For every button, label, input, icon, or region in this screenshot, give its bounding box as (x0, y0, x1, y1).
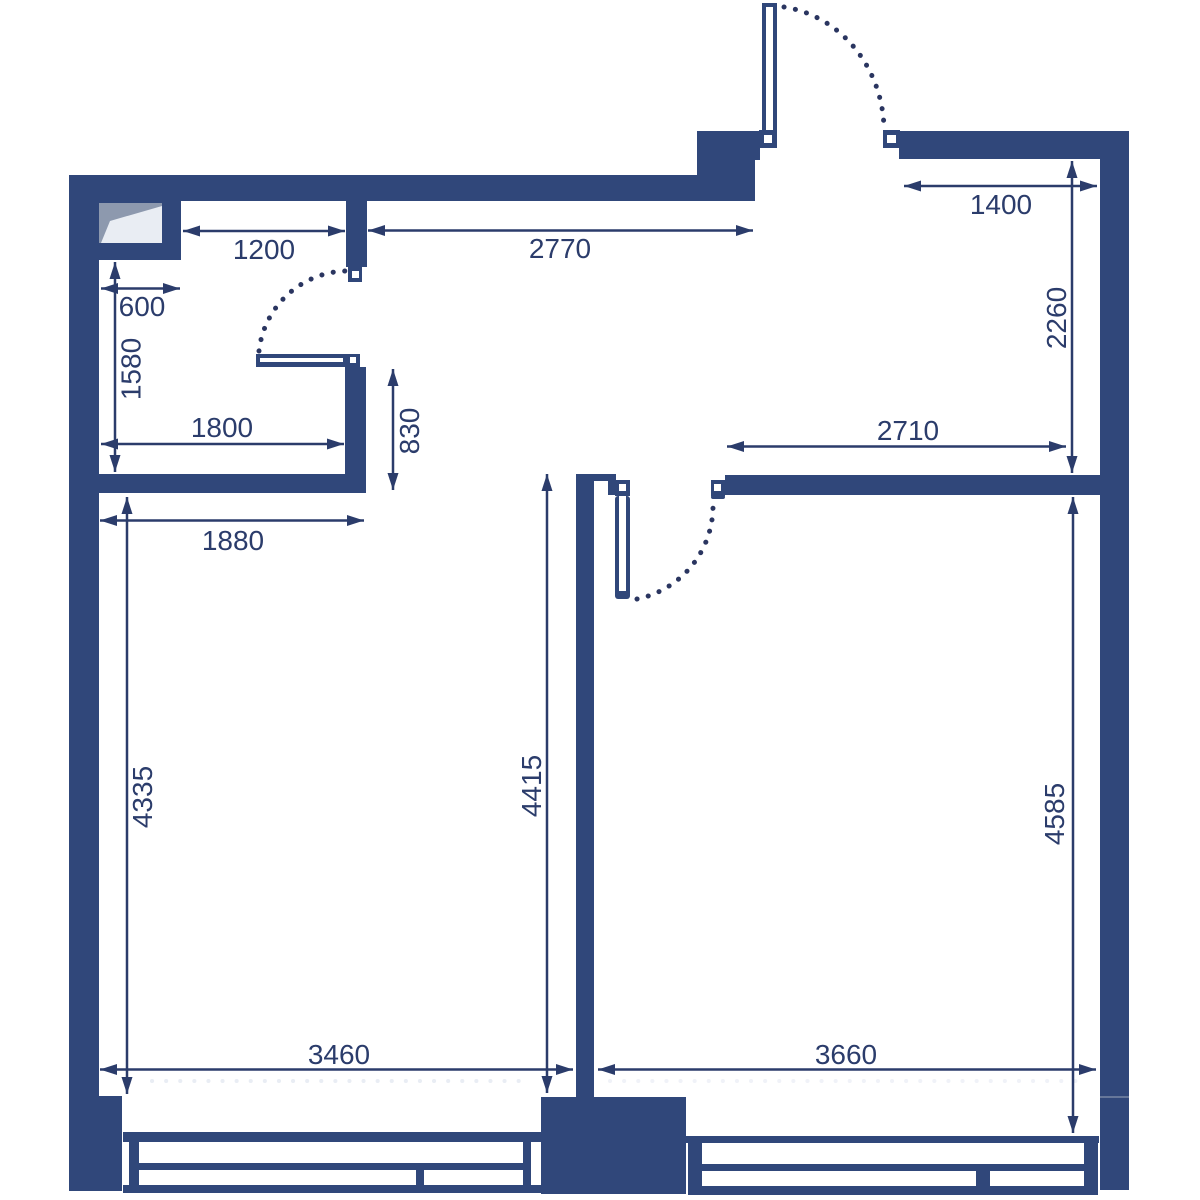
svg-text:1200: 1200 (233, 234, 295, 265)
svg-text:1400: 1400 (970, 189, 1032, 220)
svg-text:4415: 4415 (516, 755, 547, 817)
svg-text:1580: 1580 (115, 338, 146, 400)
svg-text:4335: 4335 (127, 766, 158, 828)
svg-text:2770: 2770 (529, 233, 591, 264)
svg-text:2260: 2260 (1041, 287, 1072, 349)
svg-text:3460: 3460 (308, 1039, 370, 1070)
svg-text:4585: 4585 (1039, 783, 1070, 845)
svg-text:3660: 3660 (815, 1039, 877, 1070)
svg-text:1880: 1880 (202, 525, 264, 556)
svg-text:830: 830 (394, 408, 425, 455)
svg-text:1800: 1800 (191, 412, 253, 443)
svg-text:2710: 2710 (877, 415, 939, 446)
svg-text:600: 600 (119, 291, 166, 322)
